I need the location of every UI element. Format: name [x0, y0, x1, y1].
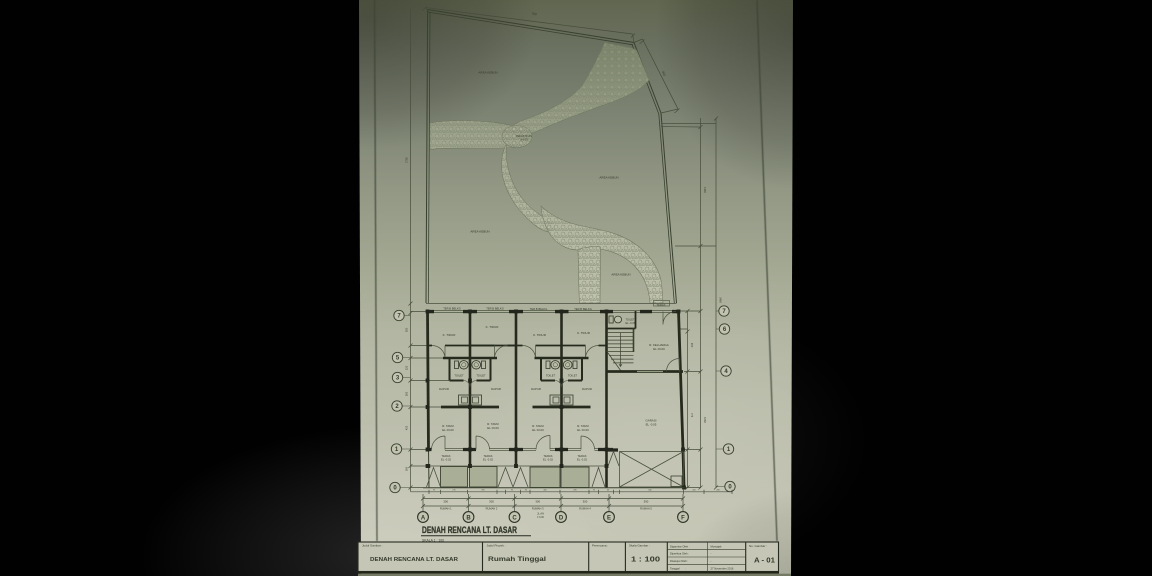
svg-text:No. Gambar :: No. Gambar :: [749, 544, 767, 548]
svg-text:Judul Gambar :: Judul Gambar :: [362, 544, 383, 548]
svg-text:TERAS: TERAS: [657, 303, 666, 307]
svg-text:AREA KEBUN: AREA KEBUN: [611, 273, 630, 277]
svg-text:425: 425: [405, 425, 409, 430]
svg-text:775: 775: [690, 413, 694, 418]
svg-text:EL -0.05: EL -0.05: [626, 321, 636, 325]
svg-text:K. TIDUR: K. TIDUR: [577, 331, 591, 335]
svg-text:D: D: [559, 515, 564, 521]
svg-text:TERAS: TERAS: [442, 454, 451, 458]
svg-text:225: 225: [405, 365, 409, 370]
svg-text:EL ±0.00: EL ±0.00: [653, 347, 665, 351]
svg-text:160: 160: [405, 466, 409, 471]
svg-text:TERAS: TERAS: [578, 454, 587, 458]
svg-text:TER.B BELKG: TER.B BELKG: [486, 307, 504, 311]
svg-text:Rumah Tinggal: Rumah Tinggal: [488, 556, 546, 563]
svg-text:EL ±0.00: EL ±0.00: [442, 428, 454, 432]
svg-text:DAPUR: DAPUR: [582, 387, 592, 391]
svg-text:TOILET: TOILET: [476, 374, 486, 378]
svg-text:EL -0.02: EL -0.02: [577, 458, 588, 462]
svg-text:RUMAH 4: RUMAH 4: [579, 507, 591, 511]
svg-text:DENAH RENCANA LT. DASAR: DENAH RENCANA LT. DASAR: [370, 557, 458, 563]
svg-text:300: 300: [583, 499, 588, 503]
svg-text:AREA KEBUN: AREA KEBUN: [478, 71, 497, 75]
svg-text:RUMAH 2: RUMAH 2: [486, 507, 498, 511]
svg-text:AREA KEBUN: AREA KEBUN: [599, 176, 618, 180]
svg-text:EL -0.05: EL -0.05: [646, 423, 657, 427]
svg-text:300: 300: [535, 499, 540, 503]
svg-text:Perencana :: Perencana :: [592, 544, 608, 548]
svg-text:RUMAH 1: RUMAH 1: [440, 507, 452, 511]
svg-text:B: B: [466, 515, 471, 521]
svg-text:2750: 2750: [405, 157, 409, 163]
svg-text:TOILET: TOILET: [626, 318, 635, 322]
svg-text:TERAS: TERAS: [484, 454, 493, 458]
svg-text:EL ±0.00: EL ±0.00: [487, 426, 499, 430]
svg-text:450: 450: [690, 343, 694, 348]
svg-text:K. TIDUR: K. TIDUR: [443, 333, 457, 337]
svg-text:-: -: [711, 560, 712, 563]
svg-text:EL -0.02: EL -0.02: [543, 458, 554, 462]
svg-text:1 : 100: 1 : 100: [631, 557, 660, 564]
svg-text:EL -0.02: EL -0.02: [483, 458, 494, 462]
svg-text:TOILET: TOILET: [454, 374, 464, 378]
svg-text:Tanggal :: Tanggal :: [670, 566, 686, 570]
svg-text:Skala Gambar :: Skala Gambar :: [629, 544, 650, 548]
svg-text:Disetujui Oleh :: Disetujui Oleh :: [670, 559, 688, 563]
svg-text:300: 300: [489, 499, 494, 503]
svg-text:± 0.05: ± 0.05: [521, 139, 529, 142]
svg-text:AREA KEBUN: AREA KEBUN: [470, 230, 489, 234]
svg-text:TERAS: TERAS: [544, 454, 553, 458]
svg-text:RUMAH 3: RUMAH 3: [532, 507, 544, 511]
svg-text:DAPUR: DAPUR: [531, 387, 541, 391]
svg-text:DENAH RENCANA LT. DASAR: DENAH RENCANA LT. DASAR: [422, 525, 517, 535]
svg-text:EL ±0.00: EL ±0.00: [577, 428, 589, 432]
svg-text:390: 390: [644, 499, 649, 503]
svg-text:A - 01: A - 01: [754, 558, 775, 565]
svg-text:3460: 3460: [719, 297, 723, 303]
svg-text:Mustajab: Mustajab: [711, 544, 722, 548]
svg-text:-: -: [711, 553, 712, 556]
svg-text:DAPUR: DAPUR: [439, 387, 449, 391]
svg-text:RUMAH 5: RUMAH 5: [640, 507, 652, 511]
svg-text:Judul Proyek :: Judul Proyek :: [487, 544, 506, 548]
svg-text:1460: 1460: [703, 187, 707, 193]
svg-text:265: 265: [405, 391, 409, 396]
svg-text:1060: 1060: [703, 417, 707, 423]
svg-text:C: C: [512, 515, 517, 521]
svg-text:DAPUR: DAPUR: [491, 387, 501, 391]
svg-text:EL -0.02: EL -0.02: [441, 458, 452, 462]
svg-text:27 November 2016: 27 November 2016: [711, 566, 734, 570]
svg-text:Diperiksa Oleh :: Diperiksa Oleh :: [670, 552, 689, 556]
svg-text:K. TIDUR: K. TIDUR: [533, 333, 547, 337]
svg-text:± 0.00: ± 0.00: [537, 516, 544, 519]
svg-text:350: 350: [405, 327, 409, 332]
svg-text:EL ±0.00: EL ±0.00: [532, 428, 544, 432]
svg-text:Digambar Oleh :: Digambar Oleh :: [670, 544, 690, 548]
svg-text:K. TIDUR: K. TIDUR: [486, 325, 500, 329]
svg-text:300: 300: [443, 499, 448, 503]
svg-text:F: F: [681, 515, 685, 521]
svg-text:A: A: [421, 515, 426, 521]
svg-text:E: E: [607, 515, 611, 521]
svg-text:TER.B BELKG: TER.B BELKG: [443, 307, 461, 311]
svg-text:700: 700: [531, 12, 537, 17]
